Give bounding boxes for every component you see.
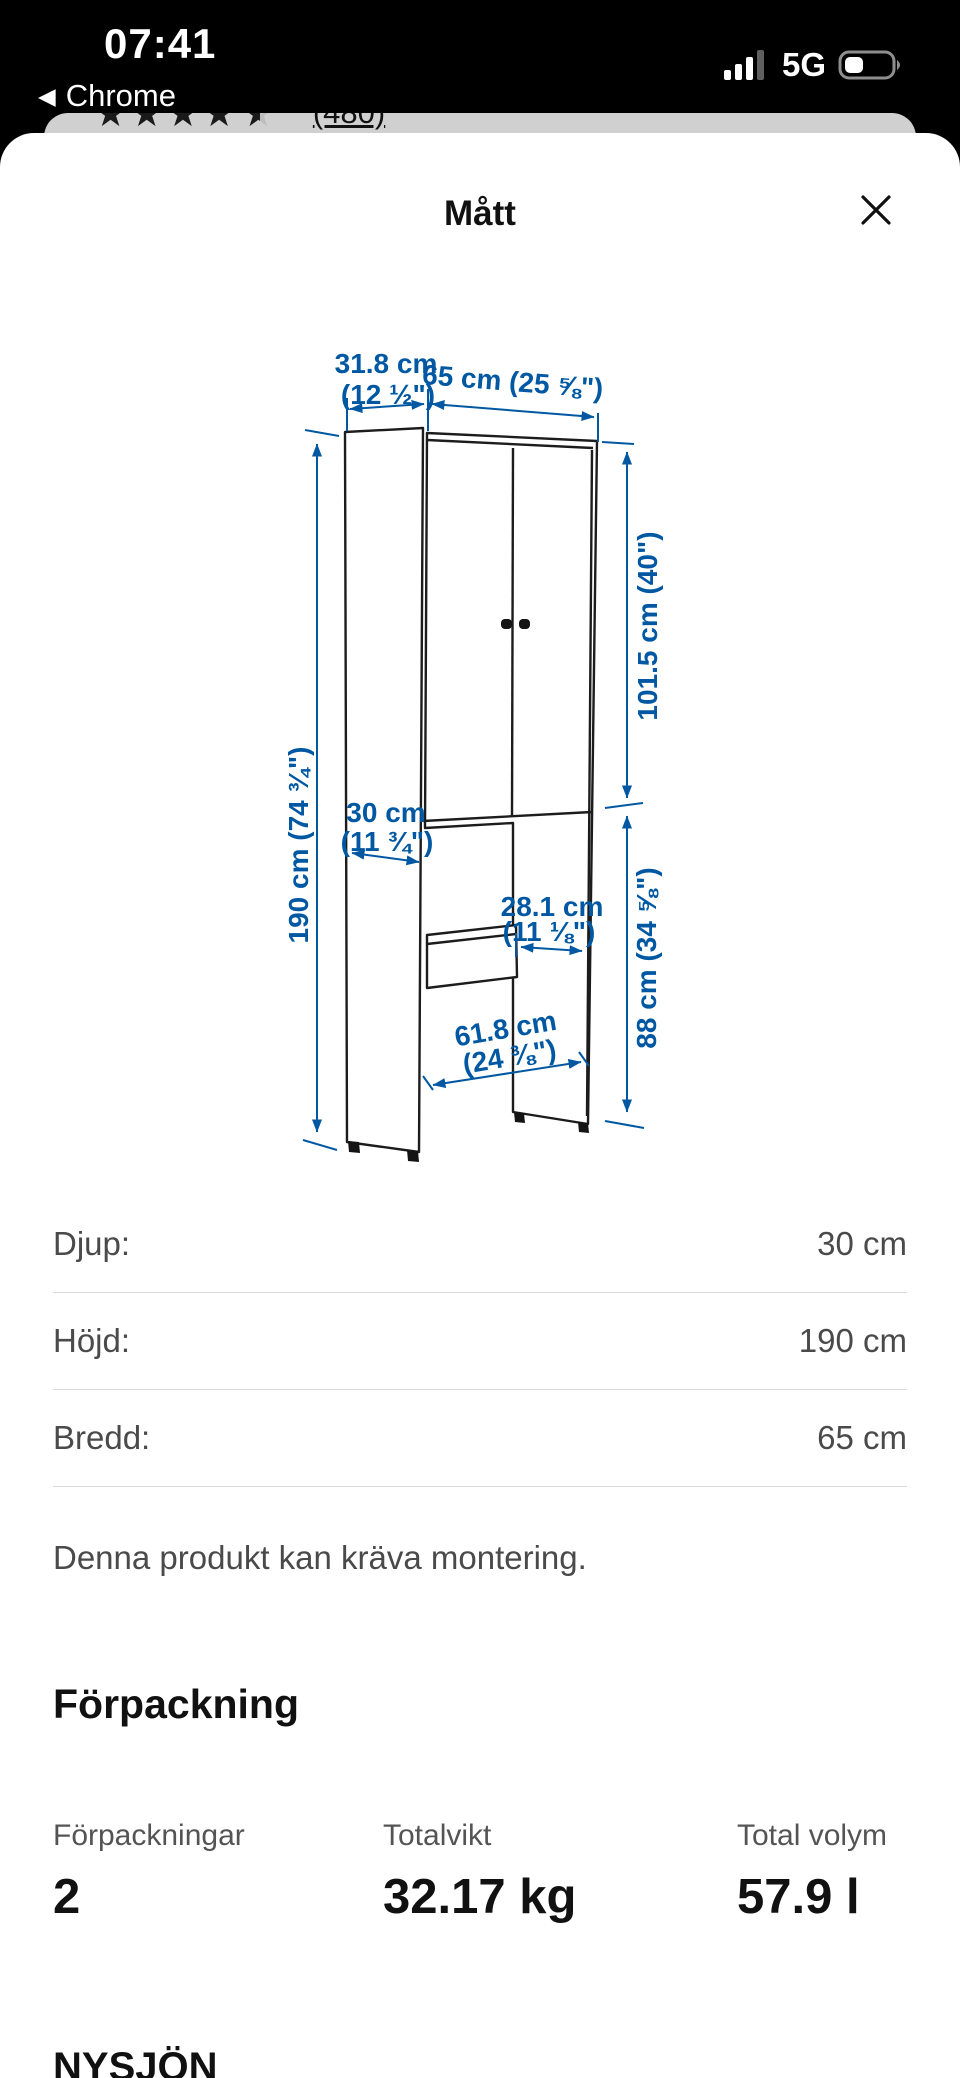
total-volume-value: 57.9 l (737, 1869, 907, 1925)
spec-row-width: Bredd: 65 cm (53, 1390, 907, 1487)
back-arrow-icon: ◀ (38, 85, 56, 108)
review-count-link[interactable]: (480) (313, 113, 385, 131)
dim-door-height: 101.5 cm (40") (632, 531, 663, 720)
spec-value: 65 cm (817, 1419, 907, 1457)
foot (348, 1141, 360, 1153)
dim-total-height: 190 cm (74 ¾") (283, 747, 314, 944)
total-weight-label: Totalvikt (383, 1819, 737, 1853)
spec-label: Höjd: (53, 1322, 130, 1360)
dim-open-height: 88 cm (34 ⅝") (631, 867, 662, 1048)
spec-row-depth: Djup: 30 cm (53, 1196, 907, 1293)
dim-base-depth-in: (11 ¾") (341, 826, 434, 857)
door-handle-left (501, 619, 512, 629)
foot (578, 1122, 589, 1133)
packaging-count-col: Förpackningar 2 (53, 1819, 383, 1925)
battery-icon (838, 49, 904, 81)
rating-stars-icon: ★★★★ (94, 113, 239, 132)
foot (407, 1150, 419, 1162)
total-volume-label: Total volym (737, 1819, 907, 1853)
product-name: NYSJÖN (53, 2045, 218, 2078)
total-weight-value: 32.17 kg (383, 1869, 737, 1925)
door-handle-right (519, 619, 530, 629)
iphone-screen: 07:41 5G ◀ Chrome ★★★★ ★ ★ (480) (0, 0, 960, 2078)
assembly-note: Denna produkt kan kräva montering. (53, 1539, 907, 1577)
rating-row: ★★★★ ★ ★ (480) (94, 113, 385, 132)
half-star-icon: ★ ★ (242, 113, 275, 132)
packaging-heading: Förpackning (53, 1681, 299, 1728)
total-weight-col: Totalvikt 32.17 kg (383, 1819, 737, 1925)
measurements-modal: Mått (0, 133, 960, 2078)
dimension-diagram: 31.8 cm (12 ½") 65 cm (25 ⅝") 190 cm (74… (278, 323, 680, 1185)
total-volume-col: Total volym 57.9 l (737, 1819, 907, 1925)
status-icons: 5G (724, 46, 904, 84)
status-time: 07:41 (104, 20, 216, 68)
spec-value: 190 cm (799, 1322, 907, 1360)
network-type-label: 5G (782, 46, 826, 84)
spec-label: Djup: (53, 1225, 130, 1263)
spec-value: 30 cm (817, 1225, 907, 1263)
dim-total-width: 65 cm (25 ⅝") (421, 359, 604, 404)
packaging-count-value: 2 (53, 1869, 383, 1925)
packaging-info: Förpackningar 2 Totalvikt 32.17 kg Total… (53, 1819, 907, 1925)
close-button[interactable] (856, 191, 896, 231)
spec-label: Bredd: (53, 1419, 150, 1457)
dim-base-depth: 30 cm (346, 797, 425, 828)
close-icon (859, 193, 893, 227)
spec-row-height: Höjd: 190 cm (53, 1293, 907, 1390)
back-app-label: Chrome (66, 78, 176, 114)
packaging-count-label: Förpackningar (53, 1819, 383, 1853)
back-to-chrome[interactable]: ◀ Chrome (38, 78, 176, 114)
dim-panel-width-in: (11 ⅛") (503, 916, 596, 947)
modal-title: Mått (0, 194, 960, 234)
signal-strength-icon (724, 48, 770, 82)
foot (514, 1112, 525, 1123)
specs-table: Djup: 30 cm Höjd: 190 cm Bredd: 65 cm (53, 1196, 907, 1487)
